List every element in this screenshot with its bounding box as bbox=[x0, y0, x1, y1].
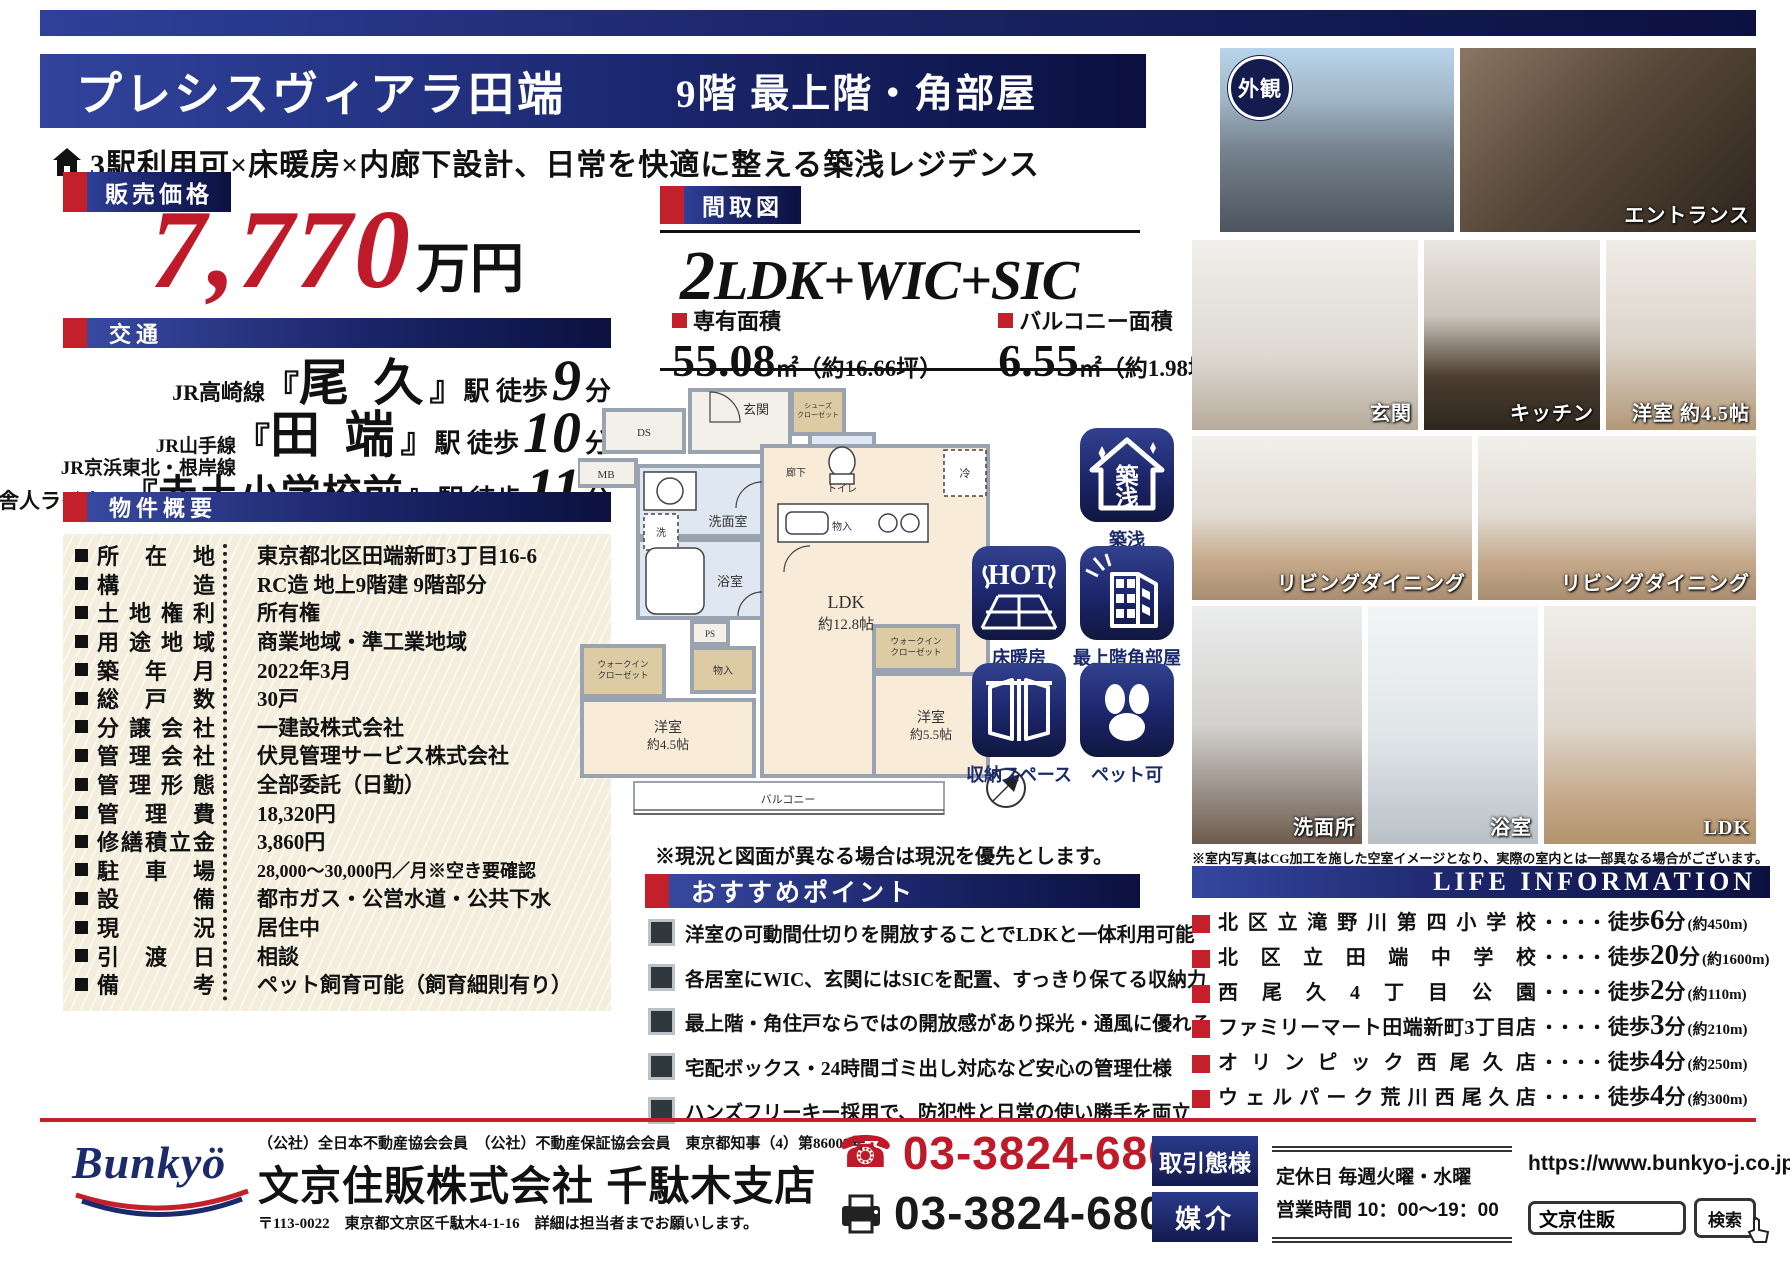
life-dots: ・・・・ bbox=[1540, 944, 1604, 970]
room-mono: 物入 bbox=[713, 664, 733, 677]
table-row: 土地権利所有権 bbox=[63, 598, 611, 627]
row-value: 2022年3月 bbox=[215, 655, 352, 685]
life-item: 北区立田端中学校 ・・・・ 徒歩 20 分 (約1600m) bbox=[1192, 941, 1756, 976]
photo-western-room: 洋室 約4.5帖 bbox=[1606, 240, 1756, 430]
life-name: 西尾久4丁目公園 bbox=[1218, 976, 1536, 1005]
catchphrase-text: 3駅利用可×床暖房×内廊下設計、日常を快適に整える築浅レジデンス bbox=[90, 140, 1040, 184]
top-accent-bar bbox=[40, 10, 1756, 36]
red-square-icon bbox=[1192, 985, 1210, 1003]
photo-kitchen: キッチン bbox=[1424, 240, 1600, 430]
point-item: 洋室の可動間仕切りを開放することでLDKと一体利用可能 bbox=[648, 918, 1148, 947]
life-item: ウェルパーク荒川西尾久店 ・・・・ 徒歩 4 分 (約300m) bbox=[1192, 1081, 1756, 1116]
red-square-icon bbox=[1192, 950, 1210, 968]
life-name: 北区立滝野川第四小学校 bbox=[1218, 906, 1536, 935]
fax-number: 03-3824-6801 bbox=[894, 1190, 1192, 1236]
room-wic: ウォークイン bbox=[890, 636, 941, 646]
overview-section-bar: 物件概要 bbox=[63, 492, 611, 522]
bracket-close: 』 bbox=[400, 413, 434, 462]
room-wic: クローゼット bbox=[890, 647, 941, 657]
life-item: 西尾久4丁目公園 ・・・・ 徒歩 2 分 (約110m) bbox=[1192, 976, 1756, 1011]
room-wic: クローゼット bbox=[597, 670, 648, 680]
row-label: 駐車場 bbox=[97, 854, 215, 886]
life-info-list: 北区立滝野川第四小学校 ・・・・ 徒歩 6 分 (約450m) 北区立田端中学校… bbox=[1192, 906, 1756, 1116]
room-wash: 洗 bbox=[656, 527, 666, 539]
table-row: 引渡日相談 bbox=[63, 941, 611, 970]
title-bar: プレシスヴィアラ田端 9階 最上階・角部屋 bbox=[40, 54, 1146, 128]
table-row: 総戸数30戸 bbox=[63, 684, 611, 713]
row-label: 築年月 bbox=[97, 654, 215, 686]
points-section-bar: おすすめポイント bbox=[645, 874, 1140, 908]
divider-line bbox=[660, 368, 1140, 371]
red-square-icon bbox=[998, 313, 1013, 328]
badge-pets-ok bbox=[1080, 663, 1174, 757]
exterior-tag: 外観 bbox=[1238, 73, 1282, 103]
points-section-label: おすすめポイント bbox=[691, 873, 915, 909]
bracket-open: 『 bbox=[265, 361, 299, 410]
area-number: 55.08 bbox=[672, 335, 776, 386]
row-label: 用途地域 bbox=[97, 625, 215, 657]
balcony-number: 6.55 bbox=[998, 335, 1079, 386]
badge-top-floor-corner bbox=[1080, 546, 1174, 640]
bar-red-block bbox=[63, 318, 87, 348]
life-walk: 徒歩 bbox=[1608, 976, 1650, 1006]
photo-living-dining-1: リビングダイニング bbox=[1192, 436, 1472, 600]
overview-table: 所在地東京都北区田端新町3丁目16-6 構造RC造 地上9階建 9階部分 土地権… bbox=[63, 534, 611, 1011]
life-unit: 分 bbox=[1679, 941, 1700, 971]
room-ps: PS bbox=[705, 629, 715, 639]
phone-icon: ☎ bbox=[838, 1131, 893, 1175]
route-minutes: 10 bbox=[523, 404, 581, 462]
room-mb: MB bbox=[597, 469, 614, 481]
hours-text: 営業時間 10：00～19：00 bbox=[1276, 1194, 1508, 1227]
company-name: 文京住販株式会社 千駄木支店 bbox=[258, 1152, 816, 1212]
photo-label: リビングダイニング bbox=[1561, 567, 1750, 596]
photo-entrance: エントランス bbox=[1460, 48, 1756, 232]
life-distance: (約250m) bbox=[1688, 1053, 1748, 1074]
life-unit: 分 bbox=[1665, 1081, 1686, 1111]
row-label: 管理会社 bbox=[97, 739, 215, 771]
row-value: 30戸 bbox=[215, 683, 299, 713]
room-sic: クローゼット bbox=[797, 410, 839, 419]
life-minutes: 20 bbox=[1650, 941, 1679, 970]
divider-line bbox=[660, 230, 1140, 233]
life-distance: (約1600m) bbox=[1702, 948, 1770, 969]
bar-red-block bbox=[63, 492, 87, 522]
deal-type-label: 取引態様 bbox=[1159, 1144, 1251, 1178]
floorplan-section-label: 間取図 bbox=[702, 188, 783, 222]
photo-label: キッチン bbox=[1510, 397, 1594, 426]
row-value: 所有権 bbox=[215, 597, 320, 627]
row-label: 管理形態 bbox=[97, 768, 215, 800]
logo-text: Bunkyö bbox=[72, 1136, 252, 1189]
point-item: 最上階・角住戸ならではの開放感があり採光・通風に優れる bbox=[648, 1007, 1148, 1036]
photo-bathroom: 浴室 bbox=[1368, 606, 1538, 844]
tel-row: ☎ 03-3824-6800 bbox=[838, 1130, 1201, 1176]
new-building-icon: 築 浅 bbox=[1080, 428, 1174, 522]
bracket-close: 』 bbox=[429, 361, 463, 410]
fax-row: 03-3824-6801 bbox=[838, 1190, 1192, 1236]
search-button-label: 検索 bbox=[1708, 1206, 1742, 1231]
room-senmen: 洗面室 bbox=[708, 514, 747, 529]
table-row: 備考ペット飼育可能（飼育細則有り） bbox=[63, 970, 611, 999]
life-minutes: 2 bbox=[1650, 976, 1665, 1005]
svg-text:HOT: HOT bbox=[988, 560, 1051, 591]
deal-type-value: 媒介 bbox=[1175, 1199, 1235, 1236]
room-west45: 洋室 bbox=[654, 719, 682, 736]
photo-label: 玄関 bbox=[1370, 397, 1412, 426]
life-minutes: 4 bbox=[1650, 1081, 1665, 1110]
route-station: 田 端 bbox=[270, 410, 401, 460]
photo-label: リビングダイニング bbox=[1277, 567, 1466, 596]
row-label: 設備 bbox=[97, 882, 215, 914]
deal-type-label-box: 取引態様 bbox=[1152, 1136, 1258, 1186]
flyer-page: プレシスヴィアラ田端 9階 最上階・角部屋 3駅利用可×床暖房×内廊下設計、日常… bbox=[0, 0, 1790, 1276]
row-value: 東京都北区田端新町3丁目16-6 bbox=[215, 540, 537, 570]
room-west55: 洋室 bbox=[917, 709, 945, 726]
row-value: 3,860円 bbox=[215, 826, 325, 856]
point-item: 宅配ボックス・24時間ゴミ出し対応など安心の管理仕様 bbox=[648, 1052, 1148, 1081]
life-dots: ・・・・ bbox=[1540, 1084, 1604, 1110]
row-label: 構造 bbox=[97, 568, 215, 600]
point-item: 各居室にWIC、玄関にはSICを配置、すっきり保てる収納力 bbox=[648, 963, 1148, 992]
route-station: 尾 久 bbox=[299, 358, 430, 408]
logo-swoosh-icon bbox=[72, 1189, 252, 1219]
photo-genkan: 玄関 bbox=[1192, 240, 1418, 430]
photo-washroom: 洗面所 bbox=[1192, 606, 1362, 844]
row-label: 備考 bbox=[97, 968, 215, 1000]
row-label: 総戸数 bbox=[97, 682, 215, 714]
photo-label: 洋室 約4.5帖 bbox=[1632, 397, 1750, 426]
life-minutes: 6 bbox=[1650, 906, 1665, 935]
life-info-bar: LIFE INFORMATION bbox=[1192, 866, 1770, 898]
room-west55: 約5.5帖 bbox=[910, 727, 952, 742]
row-value: 18,320円 bbox=[215, 798, 336, 828]
badge-floor-heating: HOT bbox=[972, 546, 1066, 640]
point-square-icon bbox=[648, 1053, 675, 1080]
price-display: 7,770 万円 bbox=[63, 194, 611, 306]
memberships-text: （公社）全日本不動産協会会員 （公社）不動産保証協会会員 東京都知事（4）第86… bbox=[258, 1132, 866, 1153]
room-corridor: 廊下 bbox=[786, 466, 806, 479]
point-text: 各居室にWIC、玄関にはSICを配置、すっきり保てる収納力 bbox=[685, 963, 1206, 992]
badge-chikuasa: 築 浅 bbox=[1080, 428, 1174, 522]
life-distance: (約450m) bbox=[1688, 913, 1748, 934]
table-row: 管理費18,320円 bbox=[63, 798, 611, 827]
red-square-icon bbox=[672, 313, 687, 328]
row-value: 相談 bbox=[215, 941, 299, 971]
bar-red-block bbox=[645, 874, 669, 908]
table-row: 分譲会社一建設株式会社 bbox=[63, 713, 611, 742]
life-item: ファミリーマート田端新町3丁目店 ・・・・ 徒歩 3 分 (約210m) bbox=[1192, 1011, 1756, 1046]
website-url[interactable]: https://www.bunkyo-j.co.jp bbox=[1528, 1152, 1790, 1176]
access-section-bar: 交通 bbox=[63, 318, 611, 348]
life-name: 北区立田端中学校 bbox=[1218, 941, 1536, 970]
table-row: 所在地東京都北区田端新町3丁目16-6 bbox=[63, 541, 611, 570]
photo-label: 浴室 bbox=[1490, 811, 1532, 840]
life-item: 北区立滝野川第四小学校 ・・・・ 徒歩 6 分 (約450m) bbox=[1192, 906, 1756, 941]
life-minutes: 4 bbox=[1650, 1046, 1665, 1075]
life-walk: 徒歩 bbox=[1608, 906, 1650, 936]
svg-text:浅: 浅 bbox=[1116, 486, 1139, 511]
row-value: 全部委託（日勤） bbox=[215, 769, 425, 799]
row-label: 所在地 bbox=[97, 539, 215, 571]
point-square-icon bbox=[648, 964, 675, 991]
table-row: 用途地域商業地域・準工業地域 bbox=[63, 627, 611, 656]
life-unit: 分 bbox=[1665, 976, 1686, 1006]
table-row: 駐車場28,000～30,000円／月※空き要確認 bbox=[63, 856, 611, 885]
tag-red-block bbox=[660, 186, 684, 224]
search-mock: 検索 bbox=[1528, 1190, 1772, 1246]
row-label: 土地権利 bbox=[97, 596, 215, 628]
room-mono: 物入 bbox=[832, 520, 852, 533]
life-dots: ・・・・ bbox=[1540, 909, 1604, 935]
point-text: 洋室の可動間仕切りを開放することでLDKと一体利用可能 bbox=[685, 918, 1195, 947]
photo-disclaimer: ※室内写真はCG加工を施した空室イメージとなり、実際の室内とは一部異なる場合がご… bbox=[1192, 848, 1768, 867]
row-value: RC造 地上9階建 9階部分 bbox=[215, 569, 487, 599]
red-square-icon bbox=[1192, 1020, 1210, 1038]
footer-divider bbox=[40, 1118, 1756, 1122]
table-row: 管理形態全部委託（日勤） bbox=[63, 770, 611, 799]
photo-exterior: 外観 bbox=[1220, 48, 1454, 232]
life-dots: ・・・・ bbox=[1540, 1014, 1604, 1040]
room-west45: 約4.5帖 bbox=[647, 737, 689, 752]
access-section-label: 交通 bbox=[109, 317, 163, 349]
cursor-hand-icon bbox=[1746, 1216, 1772, 1246]
table-divider bbox=[223, 544, 227, 1001]
overview-section-label: 物件概要 bbox=[109, 491, 217, 523]
row-label: 分譲会社 bbox=[97, 711, 215, 743]
bracket-open: 『 bbox=[236, 413, 270, 462]
company-address: 〒113-0022 東京都文京区千駄木4-1-16 詳細は担当者までお願いします… bbox=[258, 1212, 758, 1233]
red-square-icon bbox=[1192, 915, 1210, 933]
table-row: 設備都市ガス・公営水道・公共下水 bbox=[63, 884, 611, 913]
row-value: 28,000～30,000円／月※空き要確認 bbox=[215, 857, 536, 883]
point-text: 宅配ボックス・24時間ゴミ出し対応など安心の管理仕様 bbox=[685, 1052, 1172, 1081]
row-value: 商業地域・準工業地域 bbox=[215, 626, 467, 656]
exclusive-area: 専有面積 55.08㎡（約16.66坪） bbox=[672, 304, 942, 384]
page-title: プレシスヴィアラ田端 bbox=[76, 58, 566, 124]
room-ds: DS bbox=[637, 427, 651, 439]
life-unit: 分 bbox=[1665, 1046, 1686, 1076]
route-suffix: 駅 徒歩 bbox=[434, 423, 519, 460]
exterior-circle-badge: 外観 bbox=[1228, 56, 1292, 120]
row-label: 現況 bbox=[97, 911, 215, 943]
table-row: 現況居住中 bbox=[63, 913, 611, 942]
access-routes: JR高崎線 『 尾 久 』 駅 徒歩 9 分 JR山手線 JR京浜東北・根岸線 … bbox=[63, 352, 611, 512]
room-ldk: 約12.8帖 bbox=[818, 616, 874, 633]
room-genkan: 玄関 bbox=[743, 402, 769, 417]
life-distance: (約210m) bbox=[1688, 1018, 1748, 1039]
life-name: ファミリーマート田端新町3丁目店 bbox=[1218, 1011, 1536, 1040]
route-row: JR山手線 JR京浜東北・根岸線 『 田 端 』 駅 徒歩 10 分 bbox=[63, 404, 611, 460]
life-info-title: LIFE INFORMATION bbox=[1433, 867, 1756, 897]
photo-living-dining-2: リビングダイニング bbox=[1478, 436, 1756, 600]
room-rei: 冷 bbox=[960, 467, 971, 480]
table-row: 管理会社伏見管理サービス株式会社 bbox=[63, 741, 611, 770]
deal-type-value-box: 媒介 bbox=[1152, 1192, 1258, 1242]
price-unit: 万円 bbox=[416, 242, 524, 296]
area-info: 専有面積 55.08㎡（約16.66坪） バルコニー面積 6.55㎡（約1.98… bbox=[672, 304, 1234, 384]
layout-rest: LDK+WIC+SIC bbox=[714, 253, 1078, 309]
row-label: 修繕積立金 bbox=[97, 825, 215, 857]
layout-type: 2 LDK+WIC+SIC bbox=[680, 242, 1078, 312]
corner-building-icon bbox=[1080, 546, 1174, 640]
floorplan-section-tag: 間取図 bbox=[660, 186, 801, 224]
life-walk: 徒歩 bbox=[1608, 1081, 1650, 1111]
business-hours-block: 定休日 毎週火曜・水曜 営業時間 10：00～19：00 bbox=[1272, 1146, 1512, 1243]
holiday-text: 定休日 毎週火曜・水曜 bbox=[1276, 1161, 1508, 1194]
row-label: 管理費 bbox=[97, 797, 215, 829]
life-walk: 徒歩 bbox=[1608, 1011, 1650, 1041]
life-dots: ・・・・ bbox=[1540, 1049, 1604, 1075]
route-line-1: JR山手線 bbox=[156, 436, 236, 457]
floor-heating-icon: HOT bbox=[972, 546, 1066, 640]
room-sic: シューズ bbox=[804, 401, 832, 410]
table-row: 構造RC造 地上9階建 9階部分 bbox=[63, 570, 611, 599]
badge-caption: ペット可 bbox=[1057, 761, 1197, 787]
point-square-icon bbox=[648, 919, 675, 946]
row-value: 都市ガス・公営水道・公共下水 bbox=[215, 883, 551, 913]
photo-ldk: LDK bbox=[1544, 606, 1756, 844]
paw-icon bbox=[1080, 663, 1174, 757]
area-label: 専有面積 bbox=[693, 304, 781, 336]
life-unit: 分 bbox=[1665, 1011, 1686, 1041]
route-line-name: JR高崎線 bbox=[172, 380, 265, 405]
balcony-label: バルコニー面積 bbox=[1019, 304, 1173, 336]
room-ldk: LDK bbox=[828, 592, 865, 612]
floorplan-note: ※現況と図面が異なる場合は現況を優先とします。 bbox=[655, 840, 1113, 869]
life-name: オリンピック西尾久店 bbox=[1218, 1046, 1536, 1075]
route-row: JR高崎線 『 尾 久 』 駅 徒歩 9 分 bbox=[63, 352, 611, 404]
room-toilet: トイレ bbox=[827, 484, 857, 495]
photo-label: 洗面所 bbox=[1293, 811, 1356, 840]
row-value: 伏見管理サービス株式会社 bbox=[215, 740, 509, 770]
life-item: オリンピック西尾久店 ・・・・ 徒歩 4 分 (約250m) bbox=[1192, 1046, 1756, 1081]
room-bath: 浴室 bbox=[717, 574, 743, 589]
life-name: ウェルパーク荒川西尾久店 bbox=[1218, 1081, 1536, 1110]
photo-label: LDK bbox=[1704, 817, 1750, 840]
room-wic: ウォークイン bbox=[597, 659, 648, 669]
company-logo: Bunkyö bbox=[72, 1136, 252, 1224]
life-walk: 徒歩 bbox=[1608, 941, 1650, 971]
red-square-icon bbox=[1192, 1090, 1210, 1108]
red-square-icon bbox=[1192, 1055, 1210, 1073]
life-distance: (約110m) bbox=[1688, 983, 1747, 1004]
price-amount: 7,770 bbox=[150, 194, 412, 306]
point-text: 最上階・角住戸ならではの開放感があり採光・通風に優れる bbox=[685, 1007, 1211, 1036]
life-minutes: 3 bbox=[1650, 1011, 1665, 1040]
life-distance: (約300m) bbox=[1688, 1088, 1748, 1109]
badge-storage bbox=[972, 663, 1066, 757]
life-dots: ・・・・ bbox=[1540, 979, 1604, 1005]
table-row: 築年月2022年3月 bbox=[63, 655, 611, 684]
room-balcony: バルコニー bbox=[761, 793, 816, 806]
storage-doors-icon bbox=[972, 663, 1066, 757]
row-value: ペット飼育可能（飼育細則有り） bbox=[215, 969, 572, 999]
photo-label: エントランス bbox=[1624, 199, 1750, 228]
row-value: 一建設株式会社 bbox=[215, 712, 404, 742]
floor-badge: 9階 最上階・角部屋 bbox=[676, 63, 1037, 119]
life-walk: 徒歩 bbox=[1608, 1046, 1650, 1076]
layout-prefix: 2 bbox=[680, 242, 714, 312]
life-unit: 分 bbox=[1665, 906, 1686, 936]
fax-icon bbox=[838, 1192, 884, 1234]
row-value: 居住中 bbox=[215, 912, 320, 942]
points-list: 洋室の可動間仕切りを開放することでLDKと一体利用可能 各居室にWIC、玄関には… bbox=[648, 918, 1148, 1141]
point-square-icon bbox=[648, 1008, 675, 1035]
table-row: 修繕積立金3,860円 bbox=[63, 827, 611, 856]
search-input[interactable] bbox=[1528, 1201, 1686, 1235]
row-label: 引渡日 bbox=[97, 940, 215, 972]
